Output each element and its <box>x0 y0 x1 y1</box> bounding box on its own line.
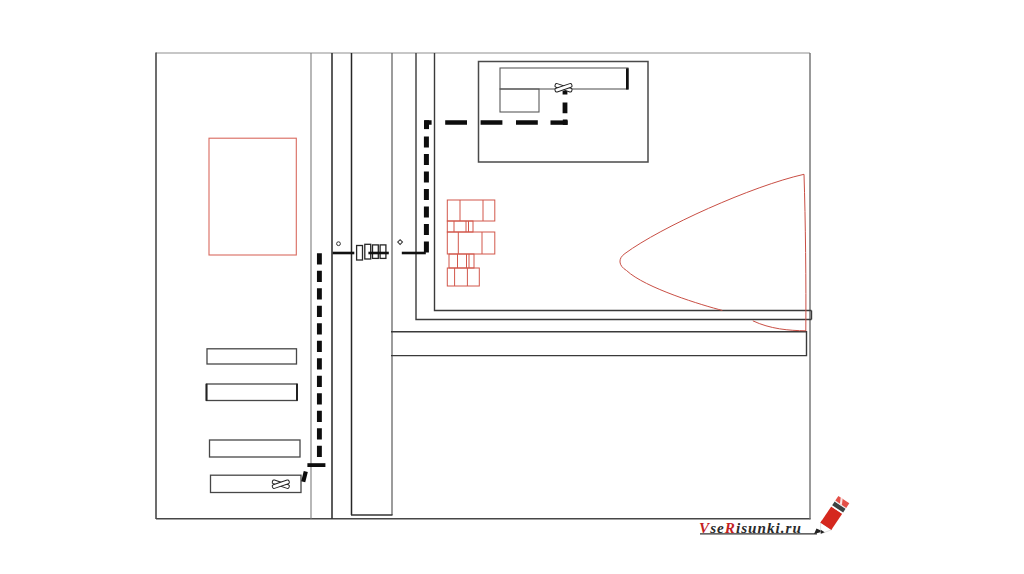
svg-text:VseRisunki.ru: VseRisunki.ru <box>699 519 802 536</box>
